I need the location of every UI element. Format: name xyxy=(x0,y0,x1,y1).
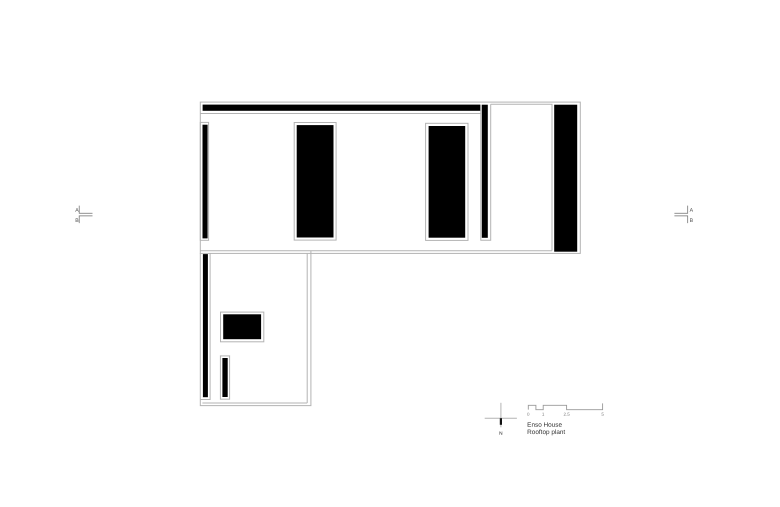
svg-text:5: 5 xyxy=(601,412,604,417)
svg-text:A: A xyxy=(75,208,79,214)
svg-text:B: B xyxy=(75,218,79,224)
svg-text:Rooftop plant: Rooftop plant xyxy=(527,429,565,436)
svg-text:B: B xyxy=(690,218,694,224)
svg-text:2.5: 2.5 xyxy=(563,412,570,417)
svg-text:0: 0 xyxy=(527,412,530,417)
svg-text:N: N xyxy=(499,431,503,437)
svg-text:Enso House: Enso House xyxy=(527,422,562,429)
svg-text:1: 1 xyxy=(542,412,545,417)
svg-text:A: A xyxy=(690,208,694,214)
